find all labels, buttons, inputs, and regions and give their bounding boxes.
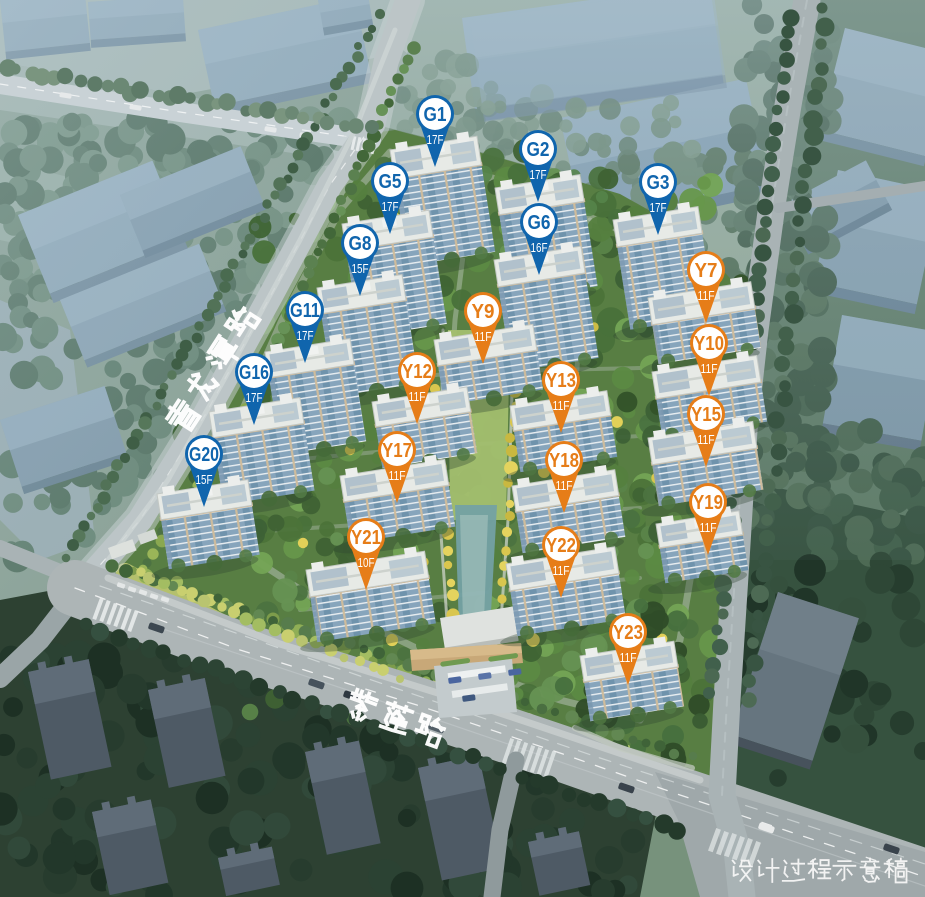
svg-text:11F: 11F bbox=[556, 478, 573, 493]
svg-text:16F: 16F bbox=[531, 240, 548, 255]
svg-text:17F: 17F bbox=[246, 390, 263, 405]
svg-text:Y12: Y12 bbox=[402, 361, 432, 383]
svg-text:Y9: Y9 bbox=[472, 301, 495, 323]
svg-text:G8: G8 bbox=[349, 233, 372, 255]
svg-text:Y23: Y23 bbox=[613, 622, 643, 644]
svg-text:11F: 11F bbox=[553, 398, 570, 413]
svg-text:Y18: Y18 bbox=[549, 450, 579, 472]
svg-text:G2: G2 bbox=[527, 139, 550, 161]
svg-text:Y21: Y21 bbox=[351, 527, 381, 549]
svg-text:Y17: Y17 bbox=[382, 440, 412, 462]
svg-text:17F: 17F bbox=[382, 199, 399, 214]
svg-text:Y22: Y22 bbox=[546, 535, 576, 557]
svg-text:17F: 17F bbox=[530, 167, 547, 182]
svg-text:G6: G6 bbox=[528, 212, 551, 234]
svg-text:11F: 11F bbox=[620, 650, 637, 665]
svg-text:Y7: Y7 bbox=[695, 260, 718, 282]
svg-text:11F: 11F bbox=[409, 389, 426, 404]
svg-text:G5: G5 bbox=[379, 171, 402, 193]
svg-text:11F: 11F bbox=[698, 432, 715, 447]
svg-text:11F: 11F bbox=[701, 361, 718, 376]
svg-text:G3: G3 bbox=[647, 172, 670, 194]
svg-text:G1: G1 bbox=[424, 104, 447, 126]
svg-text:11F: 11F bbox=[389, 468, 406, 483]
svg-text:Y19: Y19 bbox=[693, 492, 723, 514]
svg-text:17F: 17F bbox=[650, 200, 667, 215]
svg-text:17F: 17F bbox=[297, 328, 314, 343]
svg-text:G11: G11 bbox=[290, 300, 320, 322]
svg-text:11F: 11F bbox=[698, 288, 715, 303]
svg-text:15F: 15F bbox=[352, 261, 369, 276]
svg-text:Y13: Y13 bbox=[546, 370, 576, 392]
svg-text:11F: 11F bbox=[700, 520, 717, 535]
svg-text:G20: G20 bbox=[189, 444, 219, 466]
svg-text:11F: 11F bbox=[553, 563, 570, 578]
svg-text:11F: 11F bbox=[475, 329, 492, 344]
svg-text:Y10: Y10 bbox=[694, 333, 724, 355]
svg-text:G16: G16 bbox=[239, 362, 269, 384]
svg-text:Y15: Y15 bbox=[691, 404, 721, 426]
svg-text:17F: 17F bbox=[427, 132, 444, 147]
svg-text:15F: 15F bbox=[196, 472, 213, 487]
svg-text:10F: 10F bbox=[358, 555, 375, 570]
